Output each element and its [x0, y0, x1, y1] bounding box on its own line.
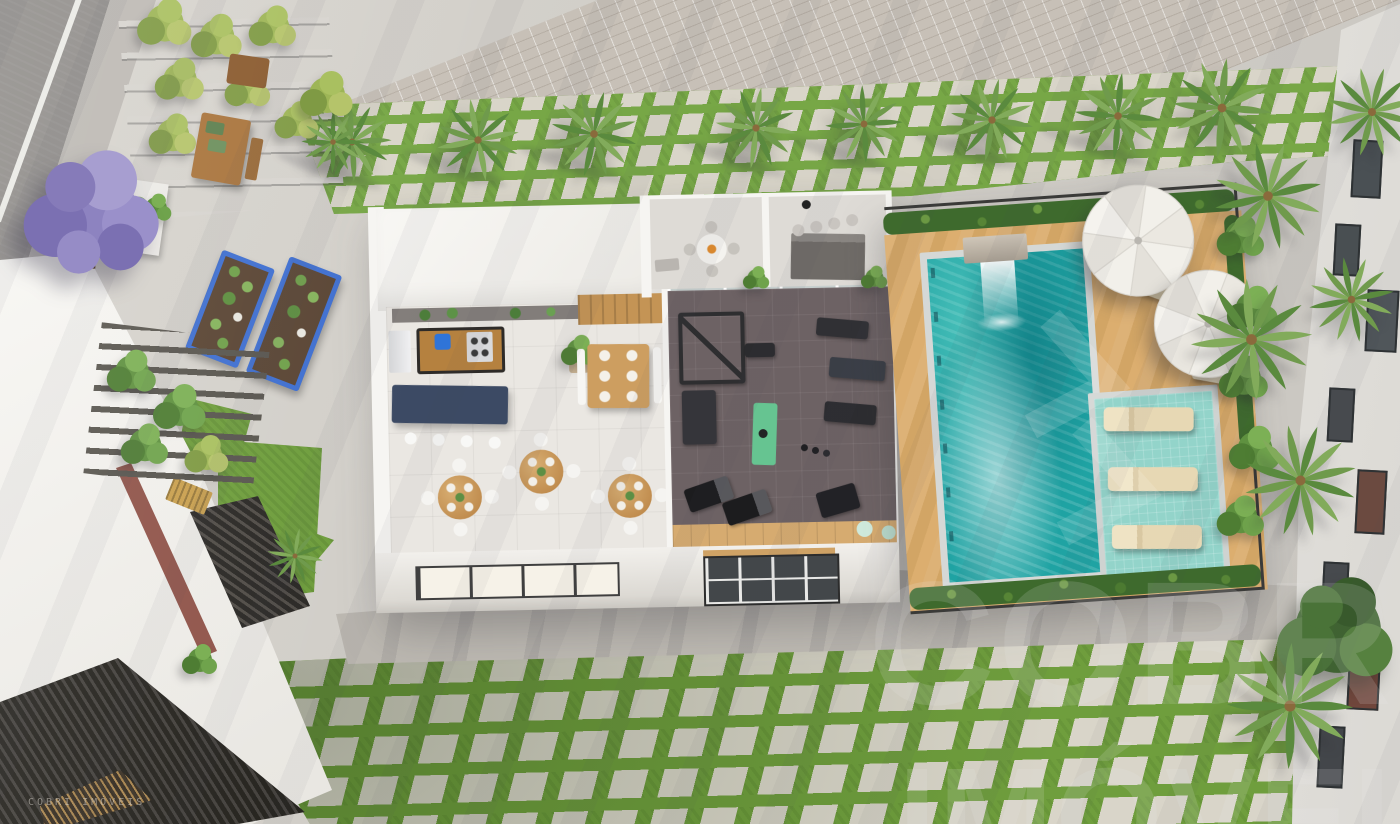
waterfall-stone	[963, 233, 1029, 263]
cooktop	[466, 332, 493, 363]
palm-tree-13	[1220, 636, 1360, 776]
patio-plant-2	[859, 262, 890, 293]
gym-cable-station	[682, 390, 717, 445]
palm-tree-2	[432, 94, 524, 186]
coffee-machine	[434, 334, 450, 350]
bush-top-left	[297, 65, 357, 125]
patio-bench	[655, 258, 680, 272]
palm-tree-7	[1070, 68, 1166, 164]
pergola-vine-3	[246, 0, 300, 54]
gym-weight-rack	[745, 343, 775, 358]
palm-tree-4	[711, 83, 801, 173]
gym-machine-3	[823, 401, 876, 425]
patio-counter	[791, 233, 866, 280]
buffet-cabinet	[578, 293, 667, 325]
dining-table	[587, 344, 649, 408]
palm-tree-10	[1184, 272, 1319, 407]
palm-tree-16	[264, 525, 326, 587]
pergola-small-table	[226, 53, 270, 88]
palm-tree-3	[546, 86, 642, 182]
palm-tree-5	[821, 81, 907, 167]
aerial-render-scene: cobri imóveis COBRI IMÓVEIS	[0, 0, 1400, 824]
gym-glass-doors	[703, 553, 840, 606]
pergola-vine-1	[134, 0, 196, 54]
dining-chairs-left	[577, 349, 586, 405]
pergola-vine-4	[152, 52, 208, 108]
pergola-left-vine-3	[118, 418, 172, 472]
patio-plant-1	[741, 263, 772, 294]
clubhouse	[344, 190, 901, 621]
kitchen-island	[392, 385, 509, 425]
palm-tree-6	[946, 74, 1038, 166]
palm-tree-11	[1238, 418, 1363, 543]
palm-tree-14	[1322, 62, 1400, 162]
gym-smith-machine	[678, 311, 745, 384]
kitchen-fridge	[388, 330, 411, 372]
dining-chairs-right	[653, 347, 662, 403]
palm-tree-9	[1208, 136, 1328, 256]
patio-entry-wall	[640, 197, 652, 297]
palm-tree-12	[1304, 252, 1399, 347]
facade-windows	[415, 562, 620, 600]
pergola-left-vine-4	[182, 430, 232, 480]
bush-louver	[180, 640, 220, 680]
jacaranda-tree	[0, 112, 192, 312]
